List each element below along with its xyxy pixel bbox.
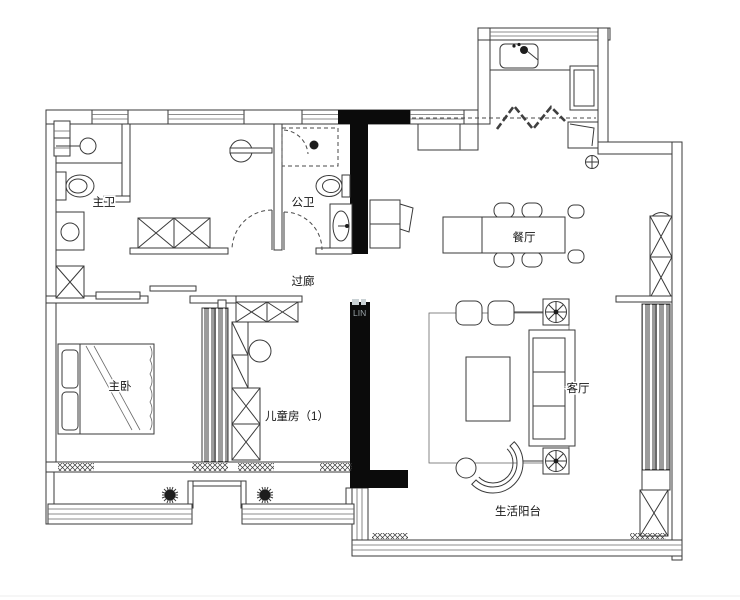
window-top-3 (302, 110, 340, 124)
room-label-kids-room: 儿童房（1） (265, 409, 329, 423)
side-table (456, 458, 476, 478)
shelf (616, 296, 672, 302)
structural-wall-mid-lower (350, 302, 370, 474)
public-bath: 公卫 (282, 128, 352, 250)
room-label-master-bath: 主卫 (93, 196, 116, 209)
threshold (150, 286, 196, 291)
coffee-table (466, 357, 510, 421)
display-cabinet (616, 213, 672, 303)
window-top-2 (168, 110, 244, 124)
floor-drain-icon (586, 156, 599, 169)
kitchen (490, 43, 599, 169)
shelf (96, 292, 140, 299)
bay-windows (46, 472, 354, 524)
toilet (316, 175, 350, 197)
wall-kidsroom-top (236, 296, 302, 302)
floor-plan: 主卫 (0, 0, 740, 600)
washer-stack (54, 121, 70, 156)
shower-head-icon (310, 141, 319, 150)
room-label-balcony: 生活阳台 (495, 504, 541, 518)
bay-window-right (242, 504, 354, 524)
room-label-public-bath: 公卫 (292, 196, 315, 209)
desk (232, 322, 271, 388)
wall-step-topright (598, 142, 682, 154)
plant-icon (257, 487, 273, 503)
wall-left (46, 110, 56, 472)
wardrobe (138, 218, 210, 248)
shelf (230, 148, 272, 153)
watermark-text: LIN (353, 308, 366, 318)
watermark: LIN (352, 299, 366, 318)
storage-cabinet (56, 266, 84, 298)
kitchen-sink (500, 43, 538, 68)
vanity-sink (330, 204, 352, 248)
entry-cabinet (568, 122, 598, 148)
walk-in-closet (138, 140, 272, 291)
toilet (56, 172, 94, 200)
vent-icon (543, 448, 569, 474)
bath-door-arc (284, 212, 322, 250)
wall-closet-bottom (130, 248, 228, 254)
wall-closet-right (274, 124, 282, 250)
wall-kitchen-left (478, 28, 490, 124)
window-top-1 (92, 110, 128, 124)
structural-wall-bottom (350, 470, 408, 488)
window-top-4 (410, 110, 464, 124)
vent-icon (543, 299, 569, 325)
basin-cabinet (56, 212, 84, 250)
room-label-corridor: 过廊 (292, 274, 315, 288)
shoe-cabinet (370, 200, 413, 248)
pillow (62, 350, 78, 388)
armchair (472, 442, 536, 506)
open-door-flap (400, 204, 413, 232)
structural-walls (338, 110, 410, 488)
room-label-master-bedroom: 主卧 (109, 380, 132, 393)
master-bath: 主卫 (54, 121, 122, 298)
bay-window-left (48, 504, 192, 524)
wall-right (672, 142, 682, 560)
room-label-living: 客厅 (567, 381, 590, 395)
tall-cabinet (570, 66, 598, 110)
bay-recess-lintel (188, 481, 246, 486)
room-label-dining: 餐厅 (513, 230, 536, 244)
master-bedroom: 主卧 (58, 292, 228, 462)
louver-wardrobe (202, 300, 228, 462)
structural-wall-mid-upper (350, 112, 368, 254)
dining-table (443, 217, 565, 253)
plant-icon (162, 487, 178, 503)
window-kitchen (490, 28, 598, 40)
living-room: 客厅 (429, 299, 590, 505)
cabinet (642, 470, 670, 490)
desk-chair (249, 340, 271, 362)
wall-kitchen-right (598, 28, 608, 152)
radiator-shelf (642, 304, 670, 470)
storage-cabinet (640, 490, 668, 536)
dining-room: 餐厅 (443, 203, 672, 302)
wardrobe (232, 388, 260, 460)
top-cabinet (236, 302, 298, 322)
floor-plan-drawing: 主卫 (0, 0, 740, 600)
closet-door-arc (232, 210, 272, 250)
window-balcony-bottom (352, 540, 682, 556)
pillow (62, 392, 78, 430)
structural-wall-top (338, 110, 410, 124)
wall-publicbath-bottom (316, 248, 352, 254)
bed (58, 344, 154, 434)
shower-area (282, 128, 338, 166)
wall-masterbath-right (122, 124, 130, 202)
wall-bedroom-top-2 (190, 296, 236, 303)
entry-bench (418, 124, 478, 150)
kids-room: 儿童房（1） (232, 302, 329, 460)
balcony: 生活阳台 (495, 304, 670, 536)
